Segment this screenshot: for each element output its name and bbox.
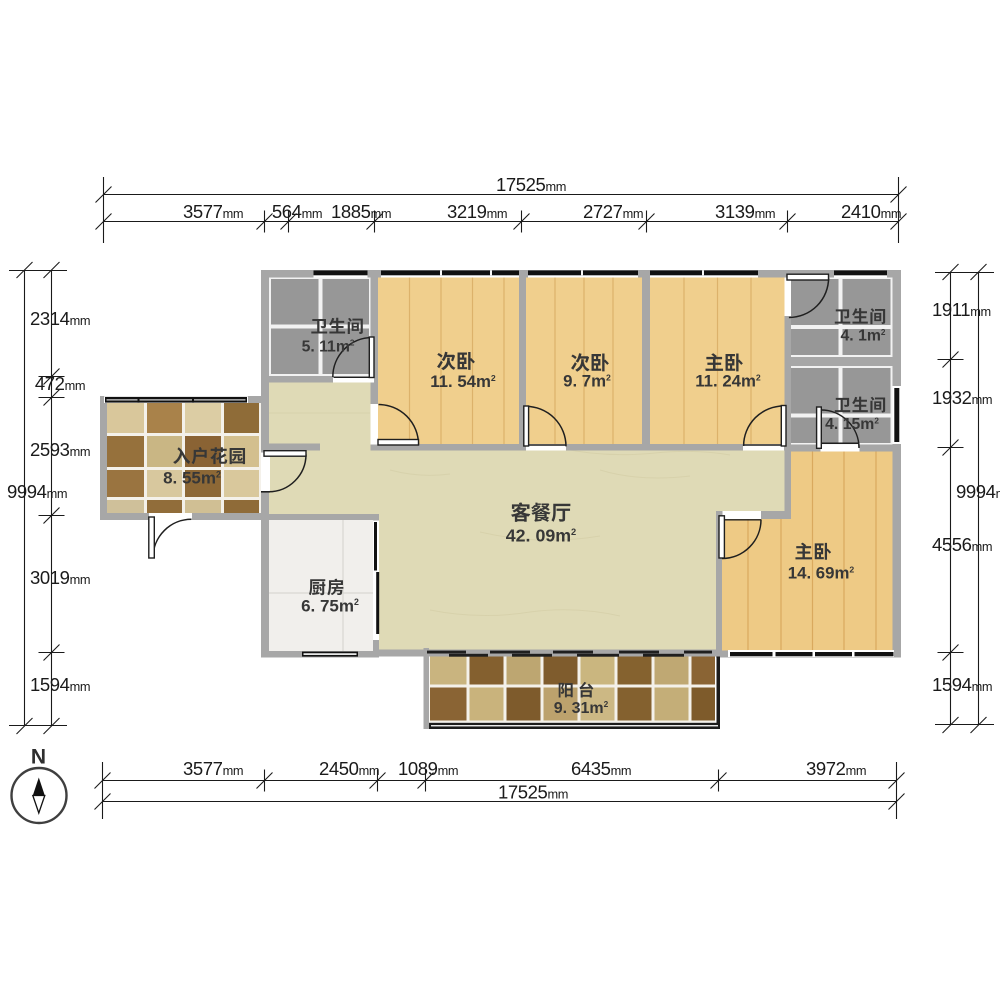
svg-text:11. 24m2: 11. 24m2: [695, 372, 761, 391]
svg-text:9. 31m2: 9. 31m2: [554, 699, 609, 717]
svg-text:9994mm: 9994mm: [956, 481, 1000, 502]
svg-text:6. 75m2: 6. 75m2: [301, 596, 359, 615]
svg-text:4. 15m2: 4. 15m2: [825, 416, 879, 433]
svg-text:14. 69m2: 14. 69m2: [788, 564, 855, 583]
svg-text:4. 1m2: 4. 1m2: [841, 328, 886, 345]
svg-text:8. 55m2: 8. 55m2: [163, 468, 221, 487]
svg-text:11. 54m2: 11. 54m2: [430, 372, 496, 391]
svg-text:N: N: [31, 746, 46, 769]
svg-text:9. 7m2: 9. 7m2: [563, 372, 611, 391]
svg-text:42. 09m2: 42. 09m2: [506, 526, 576, 546]
svg-text:5. 11m2: 5. 11m2: [302, 338, 355, 355]
